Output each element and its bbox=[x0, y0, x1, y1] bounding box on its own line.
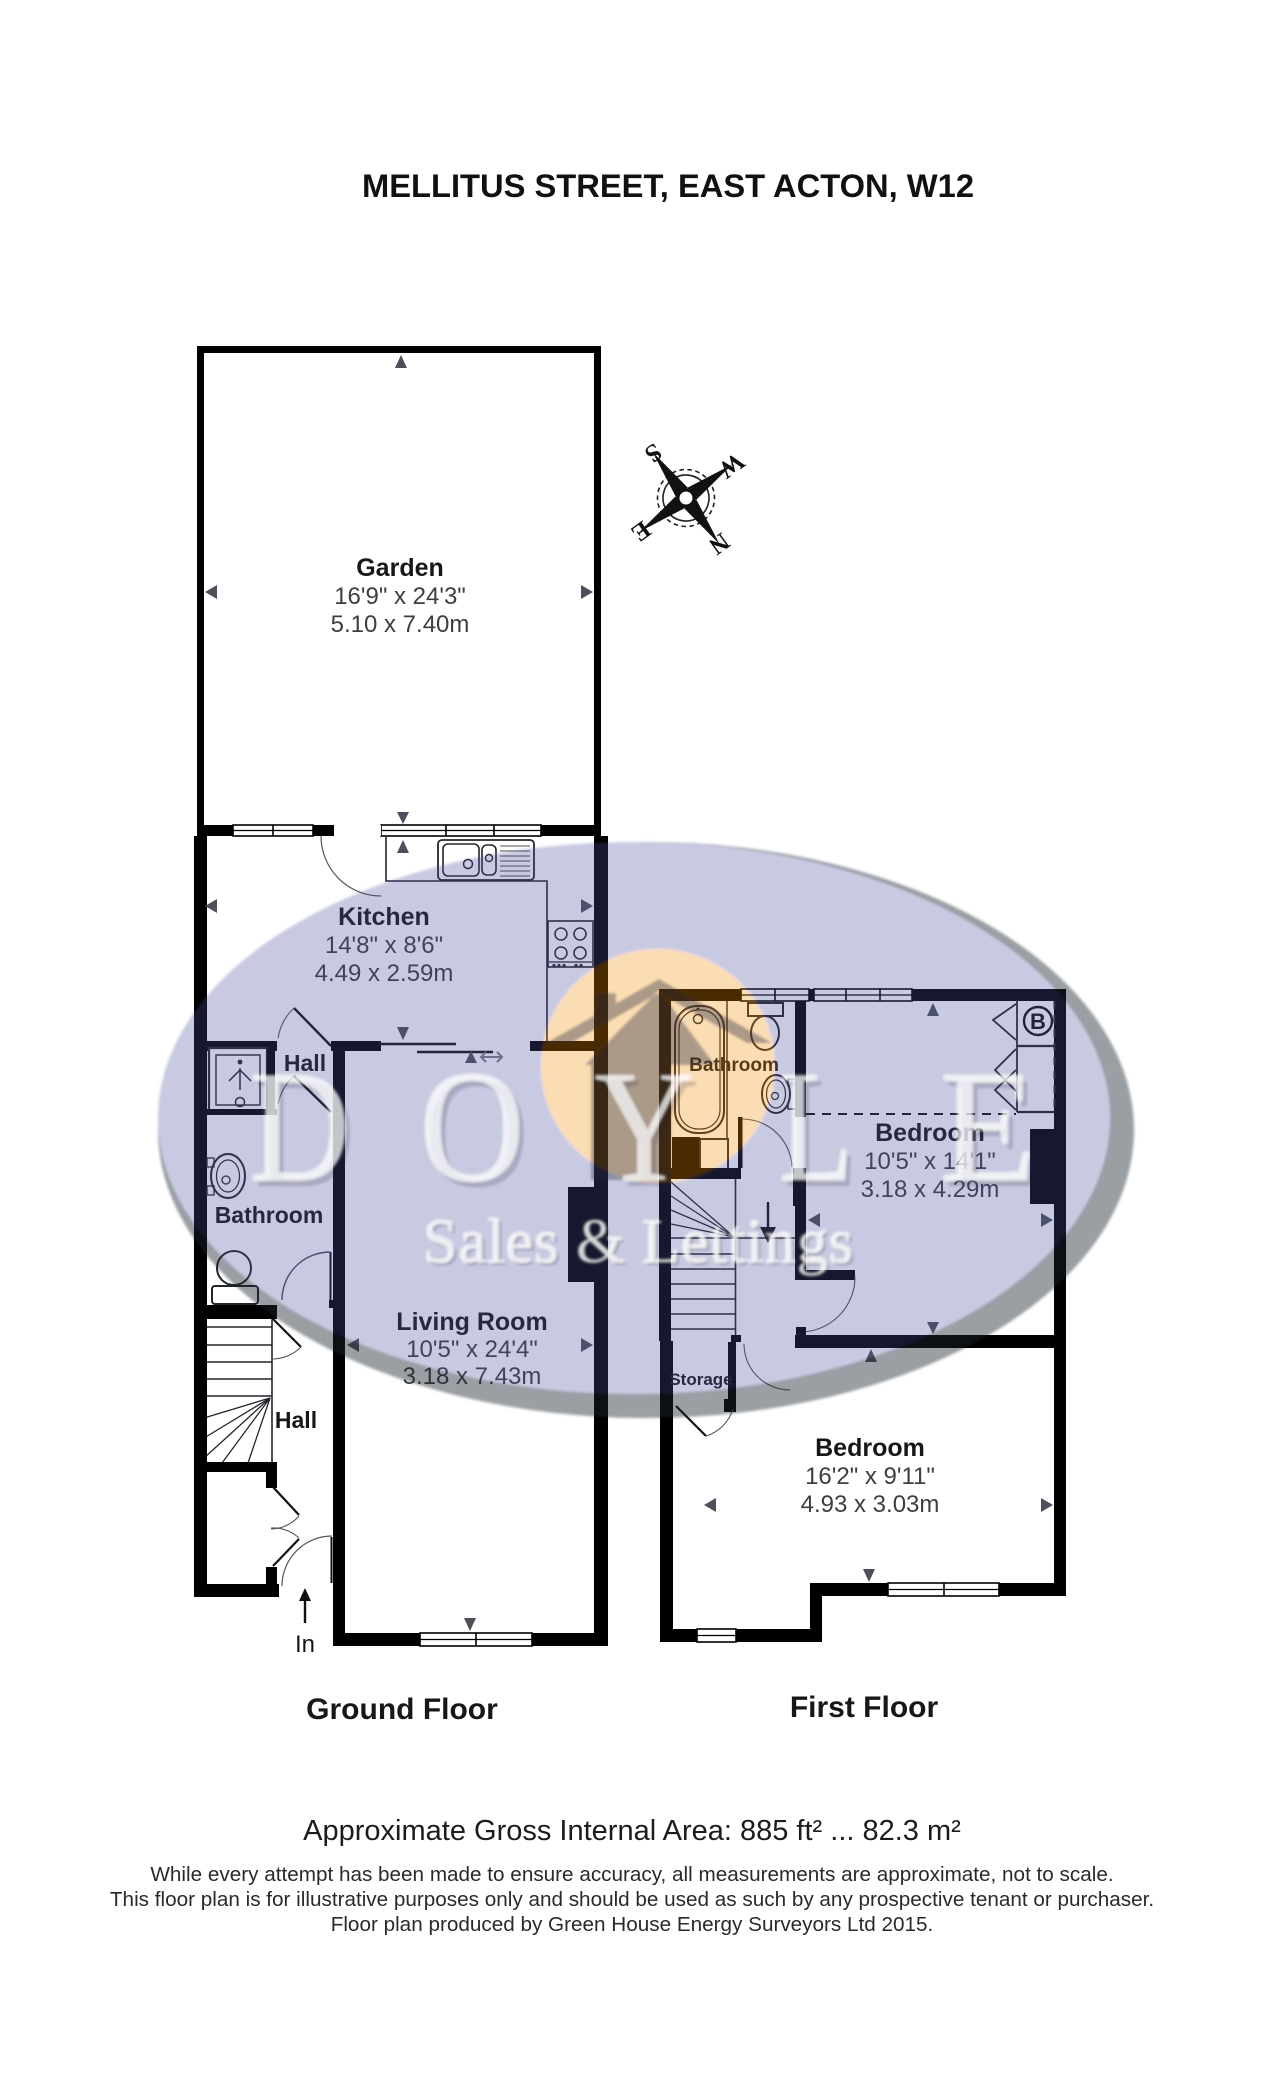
svg-text:4.93 x 3.03m: 4.93 x 3.03m bbox=[801, 1491, 940, 1518]
svg-text:16'2" x 9'11": 16'2" x 9'11" bbox=[805, 1463, 935, 1490]
svg-text:Ground Floor: Ground Floor bbox=[306, 1693, 498, 1726]
svg-text:16'9" x 24'3": 16'9" x 24'3" bbox=[334, 583, 466, 610]
svg-text:Approximate Gross Internal Are: Approximate Gross Internal Area: 885 ft²… bbox=[303, 1815, 961, 1847]
svg-text:Floor plan produced by Green H: Floor plan produced by Green House Energ… bbox=[331, 1913, 934, 1936]
svg-text:MELLITUS STREET, EAST ACTON, W: MELLITUS STREET, EAST ACTON, W12 bbox=[362, 167, 974, 204]
svg-text:Bedroom: Bedroom bbox=[815, 1434, 925, 1462]
svg-text:Garden: Garden bbox=[356, 554, 444, 582]
svg-text:Y: Y bbox=[594, 1037, 694, 1215]
svg-text:L: L bbox=[779, 1037, 853, 1215]
svg-text:This floor plan is for illustr: This floor plan is for illustrative purp… bbox=[110, 1888, 1154, 1911]
svg-text:Hall: Hall bbox=[275, 1407, 317, 1433]
svg-text:E: E bbox=[940, 1037, 1037, 1215]
svg-text:While every attempt has been m: While every attempt has been made to ens… bbox=[150, 1863, 1113, 1886]
svg-text:In: In bbox=[295, 1631, 315, 1658]
svg-text:First Floor: First Floor bbox=[790, 1691, 939, 1724]
svg-text:Sales & Lettings: Sales & Lettings bbox=[423, 1208, 854, 1276]
svg-text:D: D bbox=[250, 1037, 351, 1215]
svg-text:5.10 x 7.40m: 5.10 x 7.40m bbox=[331, 611, 470, 638]
svg-text:O: O bbox=[420, 1037, 525, 1215]
